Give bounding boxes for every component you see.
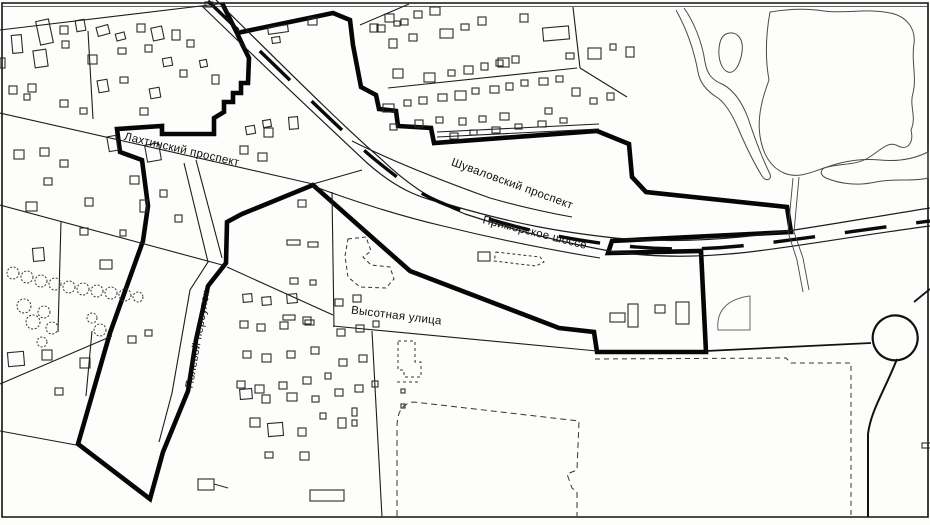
building-footprint — [455, 91, 466, 100]
shuvalovsky-line — [352, 141, 572, 217]
building-footprint — [311, 347, 319, 354]
building-footprint — [424, 73, 435, 82]
building-footprint — [448, 70, 455, 76]
building-footprint — [566, 53, 574, 59]
building-footprint — [149, 87, 161, 99]
building-footprint — [243, 351, 251, 358]
ne-block-line-4 — [580, 68, 627, 97]
building-footprint — [393, 69, 403, 78]
building-footprint — [85, 198, 93, 206]
building-footprint — [60, 160, 68, 167]
building-footprint — [440, 29, 453, 38]
building-footprint — [478, 252, 490, 261]
building-footprint — [42, 350, 52, 360]
building-footprint — [506, 83, 513, 90]
building-footprint — [120, 230, 126, 236]
building-footprint — [626, 47, 634, 57]
building-footprint — [151, 26, 164, 41]
building-footprint — [80, 228, 88, 235]
building-footprint — [655, 305, 665, 313]
bush-icon — [21, 271, 33, 283]
bush-icon — [37, 337, 47, 347]
building-footprint — [118, 48, 126, 54]
polevoy-east-line — [196, 160, 222, 258]
building-footprint — [478, 17, 486, 25]
pond-south-band — [821, 152, 928, 184]
building-footprint — [24, 94, 30, 100]
parcel-line-4 — [58, 221, 61, 332]
building-footprint — [255, 385, 264, 393]
building-footprint — [492, 127, 500, 133]
building-footprint — [145, 330, 152, 336]
street-label-4: Высотная улица — [350, 305, 442, 328]
building-footprint — [394, 21, 400, 26]
building-footprint — [352, 420, 357, 426]
roundabout-circle — [873, 315, 918, 360]
building-footprint — [283, 315, 295, 320]
building-footprint — [199, 59, 207, 67]
cadastral-map: Лахтинский проспектШуваловский проспектП… — [0, 0, 930, 525]
building-footprint — [60, 26, 68, 34]
building-footprint — [36, 19, 54, 45]
building-footprint — [373, 321, 379, 327]
building-footprint — [172, 30, 180, 40]
building-footprint — [287, 240, 300, 245]
building-footprint — [120, 77, 128, 83]
building-footprint — [359, 355, 367, 362]
building-footprint — [115, 32, 126, 41]
building-footprint — [389, 39, 397, 48]
bush-icon — [87, 313, 97, 323]
building-footprint — [262, 297, 272, 306]
building-footprint — [267, 422, 283, 436]
bush-icon — [91, 285, 103, 297]
building-footprint — [308, 242, 318, 247]
building-footprint — [335, 389, 343, 396]
building-footprint — [137, 24, 145, 32]
bush-icon — [7, 267, 19, 279]
map-canvas: Лахтинский проспектШуваловский проспектП… — [0, 0, 930, 525]
building-footprint — [335, 299, 343, 306]
building-footprint — [479, 116, 486, 122]
building-footprint — [262, 395, 270, 403]
building-footprint — [556, 76, 563, 82]
building-footprint — [180, 70, 187, 77]
building-footprint — [472, 88, 479, 94]
building-footprint — [11, 35, 23, 54]
building-footprint — [140, 108, 148, 115]
building-footprint — [128, 336, 136, 343]
building-footprint — [438, 94, 447, 101]
building-footprint — [436, 117, 443, 123]
building-footprint — [287, 351, 295, 358]
dashed-blob-center — [345, 237, 394, 288]
building-footprint — [60, 100, 68, 107]
building-footprint — [26, 202, 37, 211]
building-footprint — [300, 452, 309, 460]
building-footprint — [310, 280, 316, 285]
building-footprint — [262, 354, 271, 362]
building-footprint — [572, 88, 580, 96]
bush-icon — [35, 275, 47, 287]
building-footprint — [7, 351, 24, 366]
bush-icon — [46, 322, 58, 334]
building-tail-line — [214, 484, 228, 488]
bush-icon — [94, 324, 106, 336]
building-footprint — [628, 304, 638, 327]
building-footprint — [290, 278, 298, 284]
road-to-roundabout — [706, 343, 871, 351]
building-footprint — [243, 294, 253, 303]
building-footprint — [588, 48, 601, 59]
building-footprint — [500, 113, 509, 120]
building-footprint — [287, 393, 297, 401]
building-footprint — [187, 40, 194, 47]
building-footprint — [401, 19, 408, 25]
building-footprint — [265, 452, 273, 458]
building-footprint — [325, 373, 331, 379]
parcel-line-10 — [313, 170, 362, 184]
bush-icon — [105, 287, 117, 299]
building-footprint — [240, 321, 248, 328]
footpath-crossing — [788, 177, 809, 292]
dashed-building — [397, 341, 421, 382]
building-footprint — [62, 41, 69, 48]
parcel-line-7 — [0, 431, 76, 445]
building-footprint — [14, 150, 24, 159]
building-footprint — [257, 324, 265, 331]
building-footprint — [288, 117, 298, 130]
building-footprint — [96, 25, 110, 37]
fan-structure — [718, 296, 750, 330]
building-footprint — [419, 97, 427, 104]
dashed-parcel-large — [397, 402, 579, 516]
building-footprint — [33, 49, 48, 68]
ne-block-line-2 — [388, 68, 577, 88]
building-footprint — [40, 148, 49, 156]
building-footprint — [610, 44, 616, 50]
bush-icon — [133, 292, 143, 302]
building-footprint — [198, 479, 214, 490]
building-footprint — [240, 388, 253, 399]
building-footprint — [258, 153, 267, 161]
building-footprint — [352, 408, 357, 416]
building-footprint — [212, 75, 219, 84]
building-footprint — [298, 428, 306, 436]
building-footprint — [240, 146, 248, 154]
building-footprint — [353, 295, 361, 302]
building-footprint — [310, 490, 344, 501]
building-footprint — [490, 86, 499, 93]
building-footprint — [245, 125, 255, 134]
vegetation-layer — [7, 267, 143, 347]
dashed-parcel-southeast — [595, 358, 851, 519]
building-footprint — [130, 176, 139, 184]
parcel-line-8 — [227, 267, 333, 315]
building-footprint — [520, 14, 528, 22]
south-street-line — [372, 331, 382, 517]
pond-large — [759, 9, 914, 175]
building-footprint — [100, 260, 112, 269]
building-footprint — [272, 36, 281, 43]
building-footprint — [590, 98, 597, 104]
building-footprint — [262, 119, 271, 127]
building-footprint — [481, 63, 488, 70]
building-footprint — [339, 359, 347, 366]
building-footprint — [44, 178, 52, 185]
building-footprint — [512, 56, 519, 63]
building-footprint — [539, 78, 548, 85]
parcel-line-2 — [88, 31, 93, 119]
building-footprint — [409, 34, 417, 41]
building-footprint — [250, 418, 260, 427]
building-footprint — [459, 118, 466, 125]
building-footprint — [404, 100, 411, 106]
street-label-layer: Лахтинский проспектШуваловский проспектП… — [123, 131, 588, 389]
building-footprint — [320, 413, 326, 419]
building-footprint — [80, 108, 87, 114]
parcel-line-6 — [86, 331, 92, 396]
building-footprint — [97, 79, 109, 93]
road-south-of-roundabout — [868, 359, 897, 517]
building-footprint — [175, 215, 182, 222]
building-footprint — [464, 66, 473, 74]
map-line-layer — [0, 0, 930, 519]
building-footprint — [280, 322, 288, 329]
parcel-line-3 — [0, 205, 226, 266]
building-footprint — [385, 14, 394, 22]
building-footprint — [298, 200, 306, 207]
bush-icon — [17, 299, 31, 313]
building-footprint — [145, 45, 152, 52]
building-footprint — [414, 11, 422, 18]
building-footprint — [610, 313, 625, 322]
building-footprint — [355, 385, 363, 392]
bush-icon — [38, 306, 50, 318]
bush-icon — [63, 281, 75, 293]
parcel-line-1 — [0, 3, 226, 30]
building-footprint — [337, 329, 345, 336]
pond-islet — [719, 33, 742, 72]
building-footprint — [676, 302, 689, 324]
building-footprint — [237, 381, 245, 388]
building-footprint — [32, 248, 44, 262]
pond-channel — [676, 8, 770, 180]
building-footprint — [9, 86, 17, 94]
building-footprint — [55, 388, 63, 395]
railway-south-rail — [216, 0, 930, 256]
building-footprint — [338, 418, 346, 428]
building-footprint — [28, 84, 36, 92]
building-footprint — [542, 26, 569, 41]
building-footprint — [496, 60, 503, 66]
building-footprint — [430, 7, 440, 15]
building-footprint — [538, 121, 546, 127]
building-footprint — [521, 80, 528, 86]
building-footprint — [560, 118, 567, 123]
building-footprint — [607, 93, 614, 100]
building-footprint — [279, 382, 287, 389]
bush-icon — [26, 315, 40, 329]
building-footprint — [264, 128, 273, 137]
building-footprint — [461, 24, 469, 30]
parcel-line-9 — [332, 192, 334, 327]
building-footprint — [312, 396, 319, 402]
bush-icon — [77, 283, 89, 295]
building-footprint — [401, 389, 405, 393]
building-footprint — [303, 377, 311, 384]
dashed-sliver-road — [494, 252, 544, 266]
building-footprint — [162, 57, 172, 66]
building-footprint — [160, 190, 167, 197]
building-footprint — [545, 108, 552, 114]
